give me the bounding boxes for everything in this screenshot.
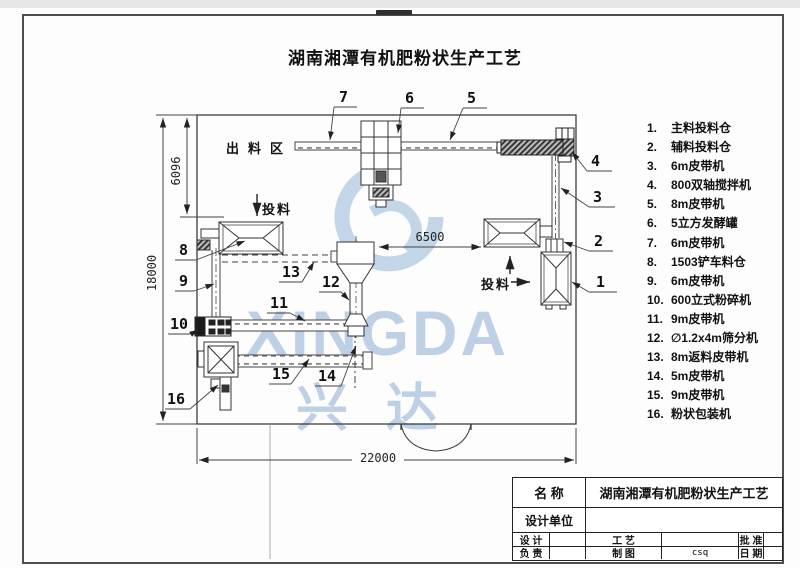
title-block-draft-label: 制 图 — [585, 547, 661, 560]
legend-label: 1503铲车料仓 — [671, 253, 746, 272]
legend-num: 9. — [647, 272, 671, 291]
legend-num: 4. — [647, 176, 671, 195]
legend-num: 12. — [647, 329, 671, 348]
callout-8: 8 — [179, 241, 188, 259]
legend-item: 7.6m皮带机 — [647, 234, 781, 253]
legend-num: 11. — [647, 310, 671, 329]
callout-14: 14 — [318, 367, 336, 385]
callout-5: 5 — [467, 89, 476, 107]
legend-item: 15.9m皮带机 — [647, 386, 781, 405]
feed-label-top: 投料 — [262, 199, 292, 218]
title-block-lead-label: 负 责 — [513, 547, 549, 560]
callout-12: 12 — [322, 273, 340, 291]
belt-conveyor-9 — [212, 248, 220, 324]
legend-num: 8. — [647, 253, 671, 272]
title-block-unit-label: 设计单位 — [513, 508, 585, 532]
title-block-name-label: 名 称 — [513, 478, 585, 507]
title-block-name-value: 湖南湘潭有机肥粉状生产工艺 — [585, 478, 782, 507]
legend-item: 1.主料投料仓 — [647, 119, 781, 138]
legend-item: 10.600立式粉碎机 — [647, 291, 781, 310]
packaging-machine — [198, 342, 238, 410]
legend-label: 主料投料仓 — [671, 119, 731, 138]
loader-bin-hopper — [197, 222, 283, 254]
legend-num: 3. — [647, 157, 671, 176]
legend-label: 6m皮带机 — [671, 234, 724, 253]
twin-shaft-mixer — [497, 128, 574, 162]
legend-label: 6m皮带机 — [671, 157, 724, 176]
title-block-date-value — [763, 547, 782, 560]
legend-num: 16. — [647, 405, 671, 424]
legend-label: 9m皮带机 — [671, 310, 724, 329]
callout-11: 11 — [270, 294, 288, 312]
legend-num: 7. — [647, 234, 671, 253]
discharge-area-label: 出料区 — [226, 138, 292, 157]
main-feed-hopper — [541, 252, 571, 309]
dim-mid-span: 6500 — [408, 230, 452, 244]
legend-item: 12.∅1.2x4m筛分机 — [647, 329, 781, 348]
legend-item: 2.辅料投料仓 — [647, 138, 781, 157]
belt-conveyor-3 — [552, 153, 559, 240]
callout-3: 3 — [593, 188, 602, 206]
legend-num: 14. — [647, 367, 671, 386]
drawing-sheet: XINGDA 兴达 — [0, 0, 800, 568]
callout-2: 2 — [594, 232, 603, 250]
drawing-title: 湖南湘潭有机肥粉状生产工艺 — [280, 44, 530, 69]
title-block-design-label: 设 计 — [513, 533, 549, 546]
legend-num: 2. — [647, 138, 671, 157]
legend-label: 6m皮带机 — [671, 272, 724, 291]
title-block-approve-value — [763, 533, 782, 546]
legend-label: 600立式粉碎机 — [671, 291, 751, 310]
legend-item: 11.9m皮带机 — [647, 310, 781, 329]
title-block-unit-value — [585, 508, 782, 532]
callout-9: 9 — [179, 272, 188, 290]
legend-item: 16.粉状包装机 — [647, 405, 781, 424]
legend-num: 6. — [647, 214, 671, 233]
fermentation-tank — [361, 121, 401, 207]
belt-conveyor-11 — [222, 320, 356, 331]
title-block-process-label: 工 艺 — [585, 533, 661, 546]
legend-num: 10. — [647, 291, 671, 310]
legend-item: 5.8m皮带机 — [647, 195, 781, 214]
title-block: 名 称 湖南湘潭有机肥粉状生产工艺 设计单位 设 计 工 艺 批 准 负 责 制… — [512, 477, 783, 561]
dim-height-total: 18000 — [145, 249, 159, 297]
legend-item: 8.1503铲车料仓 — [647, 253, 781, 272]
callout-13: 13 — [282, 263, 300, 281]
callout-4: 4 — [591, 152, 600, 170]
legend-label: ∅1.2x4m筛分机 — [671, 329, 758, 348]
equipment-legend: 1.主料投料仓 2.辅料投料仓 3.6m皮带机 4.800双轴搅拌机 5.8m皮… — [647, 119, 781, 425]
title-block-process-value — [661, 533, 738, 546]
legend-label: 9m皮带机 — [671, 386, 724, 405]
legend-label: 8m皮带机 — [671, 195, 724, 214]
callout-1: 1 — [596, 273, 605, 291]
callout-15: 15 — [272, 365, 290, 383]
legend-item: 14.5m皮带机 — [647, 367, 781, 386]
title-block-design-value — [549, 533, 585, 546]
legend-num: 15. — [647, 386, 671, 405]
legend-item: 6.5立方发酵罐 — [647, 214, 781, 233]
legend-label: 粉状包装机 — [671, 405, 731, 424]
legend-item: 13.8m返料皮带机 — [647, 348, 781, 367]
legend-item: 9.6m皮带机 — [647, 272, 781, 291]
dim-height-upper: 6096 — [169, 151, 183, 191]
title-block-draft-value: csq — [661, 547, 738, 560]
legend-label: 5立方发酵罐 — [671, 214, 738, 233]
callout-10: 10 — [170, 315, 188, 333]
aux-feed-hopper — [484, 219, 563, 253]
legend-item: 4.800双轴搅拌机 — [647, 176, 781, 195]
legend-label: 800双轴搅拌机 — [671, 176, 751, 195]
vertical-crusher — [195, 317, 231, 336]
legend-num: 13. — [647, 348, 671, 367]
legend-label: 5m皮带机 — [671, 367, 724, 386]
legend-label: 辅料投料仓 — [671, 138, 731, 157]
legend-label: 8m返料皮带机 — [671, 348, 748, 367]
callout-7: 7 — [339, 88, 348, 106]
title-block-lead-value — [549, 547, 585, 560]
title-block-approve-label: 批 准 — [738, 533, 763, 546]
callout-6: 6 — [405, 89, 414, 107]
legend-num: 1. — [647, 119, 671, 138]
callout-16: 16 — [167, 390, 185, 408]
dim-width-total: 22000 — [352, 451, 404, 465]
title-block-date-label: 日 期 — [738, 547, 763, 560]
feed-label-right: 投料 — [481, 274, 511, 293]
legend-item: 3.6m皮带机 — [647, 157, 781, 176]
border-smudge — [376, 10, 412, 15]
legend-num: 5. — [647, 195, 671, 214]
